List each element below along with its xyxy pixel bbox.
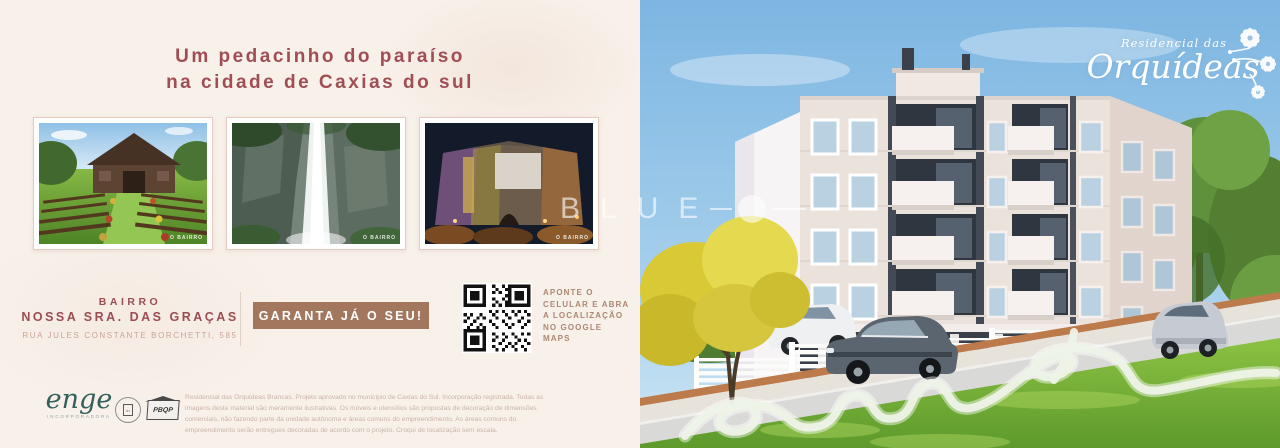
cta-button[interactable]: GARANTA JÁ O SEU! [253, 302, 429, 329]
waterfall-photo: O BAIRRO [232, 123, 400, 244]
winery-illustration [425, 123, 593, 244]
photo-frame-garden: O BAIRRO [33, 117, 213, 250]
photo-caption: O BAIRRO [556, 235, 589, 241]
photo-frame-waterfall: O BAIRRO [226, 117, 406, 250]
legal-disclaimer: Residencial das Orquídeas Brancas. Proje… [185, 392, 557, 436]
waterfall-illustration [232, 123, 400, 244]
photo-caption: O BAIRRO [363, 235, 396, 241]
neighborhood-name: NOSSA SRA. DAS GRAÇAS [18, 310, 242, 324]
photo-frame-winery: O BAIRRO [419, 117, 599, 250]
flyer-canvas: Um pedacinho do paraíso na cidade de Cax… [0, 0, 1280, 448]
brand-logo: Residencial das Orquídeas [1088, 36, 1278, 84]
winery-night-photo: O BAIRRO [425, 123, 593, 244]
seal-core-glyph: in [123, 404, 133, 416]
qr-pattern [462, 283, 532, 353]
qr-caption: APONTE O CELULAR E ABRA A LOCALIZAÇÃO NO… [543, 287, 629, 345]
certification-seal-icon: in [115, 397, 141, 423]
enge-logo: enge INCORPORADORA [38, 386, 120, 419]
neighborhood-label: BAIRRO [18, 296, 242, 308]
photo-caption: O BAIRRO [170, 235, 203, 241]
pbqp-logo: PBQP [146, 400, 179, 420]
title-line-1: Um pedacinho do paraíso [0, 44, 640, 70]
vertical-divider [240, 292, 241, 346]
qr-code[interactable] [462, 283, 532, 353]
neighborhood-photos: O BAIRRO [33, 117, 599, 250]
left-flyer-panel: Um pedacinho do paraíso na cidade de Cax… [0, 0, 640, 448]
pbqp-logo-text: PBQP [153, 407, 173, 414]
garden-vineyard-photo: O BAIRRO [39, 123, 207, 244]
street-address: RUA JULES CONSTANTE BORCHETTI, 585 [18, 331, 242, 340]
enge-logo-text: enge [38, 386, 120, 414]
title-line-2: na cidade de Caxias do sul [0, 70, 640, 96]
neighborhood-block: BAIRRO NOSSA SRA. DAS GRAÇAS RUA JULES C… [18, 296, 242, 340]
garden-illustration [39, 123, 207, 244]
page-title: Um pedacinho do paraíso na cidade de Cax… [0, 44, 640, 96]
orchid-flowers-icon [1220, 22, 1280, 108]
enge-logo-subtext: INCORPORADORA [38, 414, 120, 419]
building-render-panel: Residencial das Orquídeas [640, 0, 1280, 448]
